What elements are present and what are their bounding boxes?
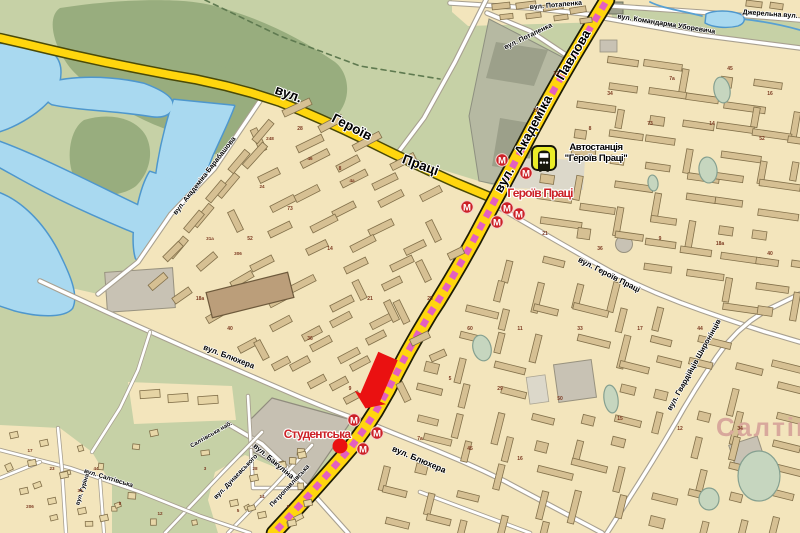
svg-text:31: 31 — [77, 488, 83, 493]
svg-text:16: 16 — [767, 91, 773, 97]
svg-text:44: 44 — [697, 326, 703, 332]
svg-text:34: 34 — [607, 91, 613, 97]
svg-text:52: 52 — [759, 136, 765, 142]
svg-text:21: 21 — [542, 231, 548, 237]
svg-text:14: 14 — [709, 121, 715, 127]
svg-text:44: 44 — [93, 466, 99, 471]
svg-text:7а: 7а — [417, 436, 423, 442]
svg-text:14: 14 — [259, 494, 265, 499]
svg-text:17: 17 — [27, 448, 33, 453]
svg-text:21: 21 — [367, 296, 373, 302]
svg-text:7а: 7а — [669, 76, 675, 82]
svg-text:17: 17 — [637, 326, 643, 332]
svg-text:36: 36 — [307, 336, 313, 342]
svg-text:М: М — [515, 209, 523, 220]
svg-text:М: М — [522, 168, 530, 179]
svg-text:36: 36 — [597, 246, 603, 252]
svg-text:14: 14 — [327, 246, 333, 252]
svg-text:23: 23 — [49, 466, 55, 471]
svg-text:Автостанція: Автостанція — [569, 142, 622, 153]
svg-text:45: 45 — [727, 66, 733, 72]
svg-text:31а: 31а — [206, 236, 214, 241]
svg-text:3: 3 — [204, 466, 207, 471]
svg-text:М: М — [359, 444, 367, 455]
svg-text:12: 12 — [677, 426, 683, 432]
svg-text:33: 33 — [577, 326, 583, 332]
svg-text:24: 24 — [259, 184, 265, 189]
svg-text:12: 12 — [553, 71, 559, 77]
svg-text:8: 8 — [339, 166, 342, 172]
svg-text:"Героїв Праці": "Героїв Праці" — [565, 153, 628, 164]
svg-text:8: 8 — [589, 126, 592, 132]
svg-text:М: М — [498, 155, 506, 166]
svg-text:М: М — [503, 203, 511, 214]
svg-text:28: 28 — [252, 466, 258, 471]
svg-text:5: 5 — [449, 376, 452, 382]
svg-text:М: М — [493, 217, 501, 228]
svg-text:18а: 18а — [716, 241, 725, 247]
svg-text:9: 9 — [349, 386, 352, 392]
svg-text:34: 34 — [737, 426, 743, 432]
svg-text:9: 9 — [659, 236, 662, 242]
svg-text:46: 46 — [307, 156, 313, 161]
svg-text:248: 248 — [266, 136, 274, 141]
svg-text:12: 12 — [157, 511, 163, 516]
svg-text:28: 28 — [533, 108, 539, 114]
svg-text:16: 16 — [517, 456, 523, 462]
svg-text:Салтівка: Салтівка — [716, 412, 800, 442]
svg-text:9: 9 — [287, 504, 290, 509]
svg-text:Героїв Праці: Героїв Праці — [507, 186, 573, 200]
svg-text:50: 50 — [557, 396, 563, 402]
svg-text:40: 40 — [227, 326, 233, 332]
svg-text:М: М — [373, 428, 381, 439]
svg-text:60: 60 — [467, 326, 473, 332]
svg-text:8: 8 — [119, 501, 122, 506]
svg-text:28: 28 — [297, 126, 303, 132]
svg-text:25: 25 — [427, 296, 433, 302]
svg-text:29: 29 — [497, 386, 503, 392]
svg-text:73: 73 — [647, 121, 653, 127]
svg-text:18а: 18а — [196, 296, 205, 302]
svg-text:15: 15 — [617, 416, 623, 422]
svg-text:5: 5 — [237, 508, 240, 513]
svg-text:40: 40 — [767, 251, 773, 257]
svg-text:306: 306 — [234, 251, 242, 256]
svg-text:52: 52 — [247, 236, 253, 242]
svg-text:45: 45 — [467, 446, 473, 452]
svg-text:206: 206 — [26, 504, 34, 509]
svg-text:4а: 4а — [349, 178, 355, 183]
svg-text:73: 73 — [287, 206, 293, 212]
svg-text:11: 11 — [517, 326, 523, 332]
svg-text:М: М — [463, 202, 471, 213]
svg-text:М: М — [350, 415, 358, 426]
